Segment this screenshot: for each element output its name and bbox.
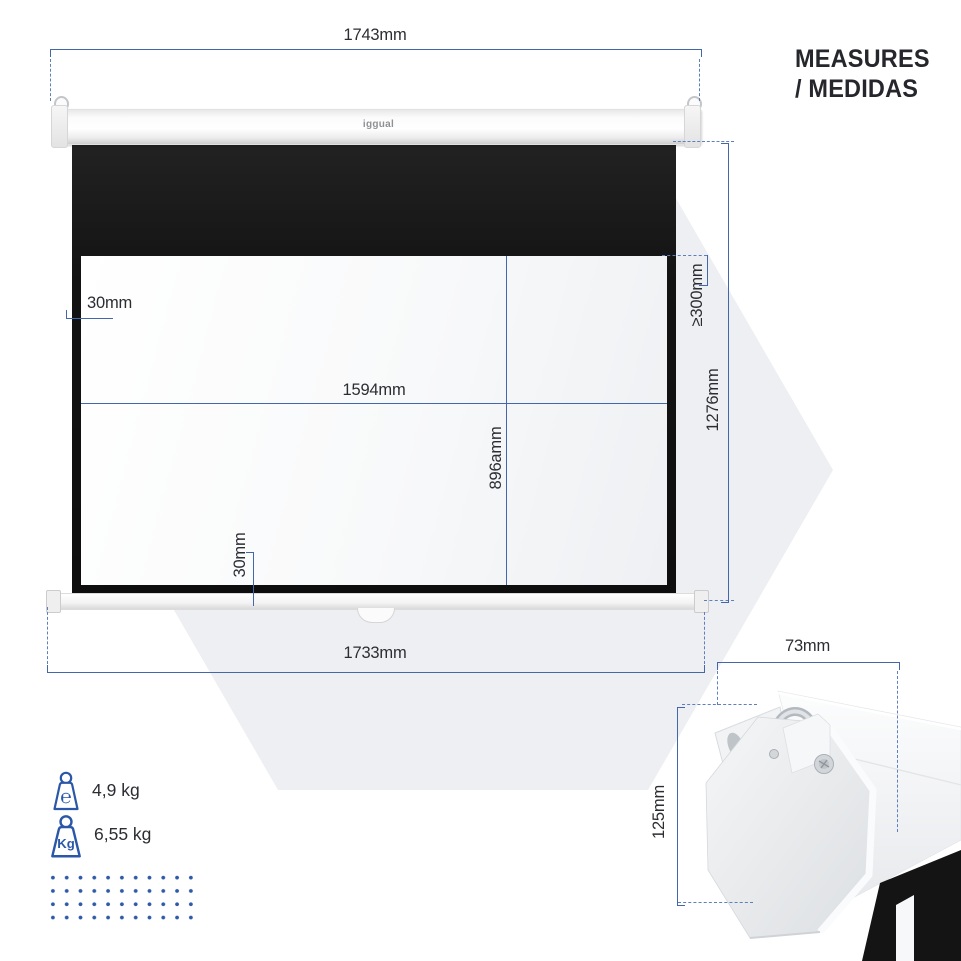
gross-weight-label: 6,55 kg (94, 824, 151, 845)
weight-bar-cap-left (46, 590, 61, 613)
net-weight-label: 4,9 kg (92, 780, 140, 801)
ext-line (673, 141, 734, 142)
gross-weight-icon-glyph: Kg (57, 836, 75, 851)
page-title: MEASURES / MEDIDAS (795, 44, 930, 104)
ext-line (699, 59, 700, 101)
bracket-detail-photo (640, 655, 961, 961)
dot-grid-decoration (46, 871, 198, 925)
dim-label-bracket-height: 125mm (651, 783, 667, 841)
gross-weight-icon: Kg (44, 813, 88, 859)
dim-label-total-height: 1276mm (705, 369, 721, 431)
ext-line (717, 671, 718, 705)
viewing-area (81, 256, 667, 585)
dim-label-black-drop: ≥300mm (689, 260, 705, 330)
screw-icon (815, 755, 834, 774)
ext-line (678, 902, 753, 903)
ext-line (897, 671, 898, 832)
ext-line (50, 59, 51, 101)
ext-line (47, 607, 48, 664)
net-weight-icon-glyph: ℮ (60, 787, 71, 808)
dim-label-viewing-width: 1594mm (81, 381, 667, 400)
dim-label-screen-width: 1733mm (47, 644, 703, 663)
screen-fabric (72, 143, 676, 597)
ext-line (704, 612, 705, 664)
dim-label-bottom-border: 30mm (232, 533, 248, 577)
housing-end-cap-left (51, 105, 68, 148)
ext-line (682, 704, 757, 705)
dim-line-screen-width (47, 665, 705, 673)
dim-line-viewing-width (81, 403, 667, 404)
dim-line-bracket-height (677, 707, 685, 906)
product-measures-diagram: iggual 1743mm 1594mm 896amm 30mm 30mm ≥3… (0, 0, 961, 961)
dim-label-viewing-height: 896amm (488, 423, 504, 493)
screen-edge-highlight (896, 895, 914, 961)
title-line-2: / MEDIDAS (795, 74, 930, 104)
ext-line (704, 600, 734, 601)
ring-stud (770, 750, 779, 759)
dim-label-housing-width: 1743mm (50, 26, 700, 45)
dim-line-housing-width (50, 49, 702, 57)
net-weight-icon: ℮ (46, 770, 86, 812)
weight-bar-cap-right (694, 590, 709, 613)
dim-label-left-border: 30mm (87, 294, 132, 313)
housing-bar: iggual (55, 109, 702, 145)
title-line-1: MEASURES (795, 44, 930, 74)
dim-label-bracket-depth: 73mm (717, 637, 898, 656)
dim-line-viewing-height (506, 256, 507, 585)
dim-line-bracket-depth (717, 662, 900, 670)
brand-logo: iggual (56, 110, 701, 140)
